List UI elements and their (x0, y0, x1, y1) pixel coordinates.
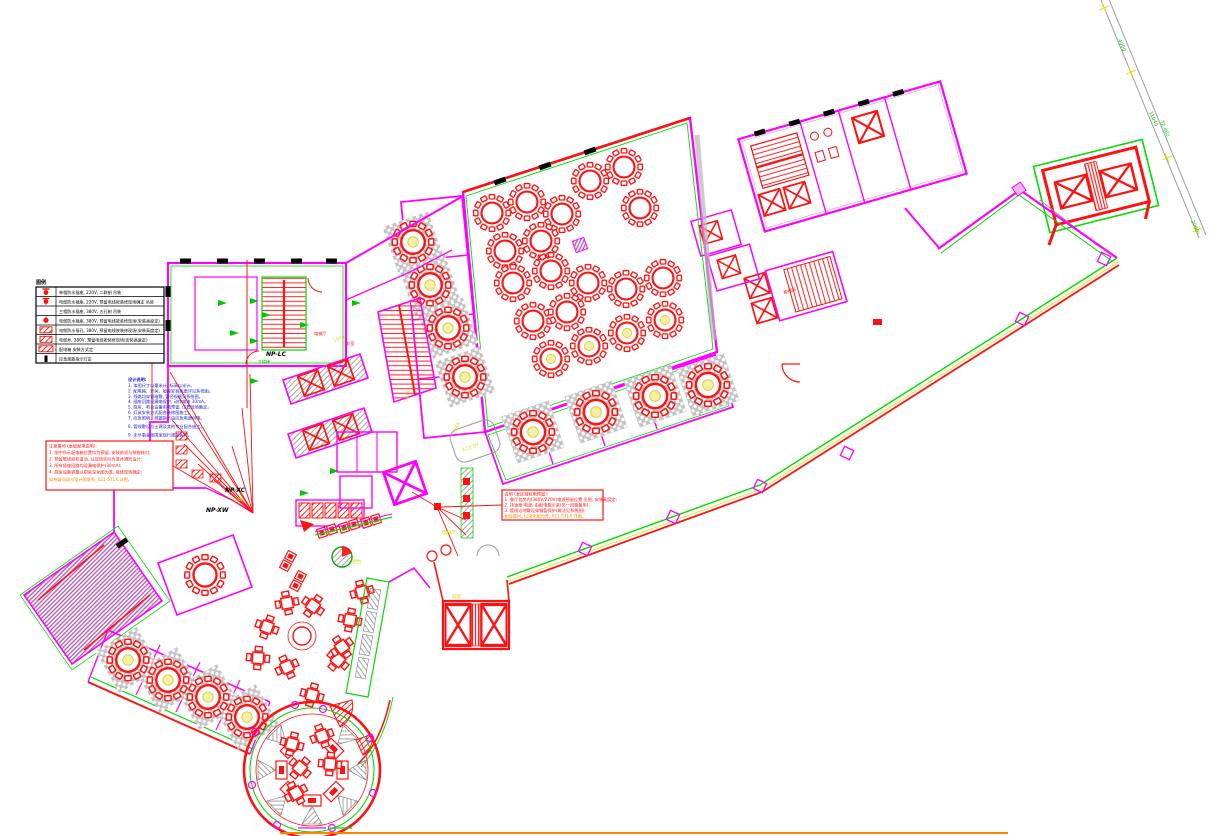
round-table (487, 233, 524, 270)
round-table (645, 260, 682, 297)
ring-table (293, 627, 311, 645)
legend-row-label: 三相防水插座, 380V, 五孔制 吊装 (59, 308, 121, 314)
legend-row-label: 电缆井, 380V, 预留电线按装修现场(安装高度定) (59, 337, 148, 343)
terrace-hall (507, 182, 1119, 584)
escalator-bank-2 (288, 408, 372, 458)
legend-row-label: 电缆防水插座, 220V, 预留电线按装修现场确定 吊装 (59, 299, 154, 305)
road-dim-label: 2050 (1189, 219, 1199, 233)
legend-row-label: 应急疏散指示灯定 (59, 356, 92, 362)
notes-line: 8. 管线敷设与土建及其他专业配合施工。 (128, 423, 205, 430)
warning-line: 2. 预留管线如有变动, 以现场实际为准并通知设计; (49, 456, 142, 463)
wc-fixtures (809, 127, 838, 162)
window-marks (166, 259, 338, 332)
fixture-mark (873, 319, 882, 325)
room-label: 入口门厅 (460, 441, 480, 454)
nw-annex-block (166, 259, 347, 367)
warning-highlight-line: 如有疑问, 以深化图为准, 021-571X 详图。 (505, 513, 586, 520)
small-table (427, 551, 437, 561)
warning-line: 1. 图中所示配电箱位置均为预留, 安装前须与装修核对; (49, 449, 151, 456)
round-table (474, 195, 511, 232)
cad-floor-plan-screenshot: 4000 11040 72.460 2050 (0, 0, 1215, 836)
round-table (509, 184, 546, 221)
warning-line: 4. 厨房设备容量以厨房深化图为准, 接线现场确定; (49, 469, 142, 476)
warning-line: 3. 所有插座回路均设漏电保护(30mA); (49, 462, 122, 469)
dim-label: 1500 (232, 497, 244, 503)
hub-circuits (412, 492, 466, 556)
legend-row-label: 单相防水插座, 220V, 二联制 吊装 (59, 289, 121, 295)
road-dim-label: 4000 (1116, 38, 1126, 52)
road-elevation-label: 72.460 (1158, 119, 1170, 137)
cable-box-icon (40, 327, 52, 333)
elevator-shaft-icon (1055, 175, 1093, 209)
sw-vip-band (88, 627, 280, 754)
legend-title: 图例 (36, 279, 46, 286)
floor-plan-svg: 4000 11040 72.460 2050 (0, 0, 1215, 836)
elevator-shaft-icon (482, 605, 507, 646)
rotunda (244, 702, 380, 836)
round-table (495, 265, 532, 302)
escalator-bank-1 (283, 354, 368, 404)
round-table-lit (571, 328, 608, 365)
panel-label: NP-LC (266, 351, 287, 358)
elevator-shaft-icon (446, 605, 471, 646)
ne-elevator-room (1030, 139, 1162, 245)
sw-wing (20, 488, 451, 767)
ne-annex-block (738, 78, 967, 231)
elevator-shaft-icon (383, 461, 426, 504)
site-road-lines: 4000 11040 72.460 2050 (1097, 0, 1206, 238)
legend-row-label: 配电箱 安装方式定 (59, 346, 93, 352)
panel-label: NP-XC (225, 487, 246, 494)
room-label: 前室 (346, 340, 354, 347)
round-table (606, 149, 643, 186)
panel-label: NP-XW (206, 507, 229, 514)
shaft-sockets (463, 478, 470, 519)
room-label: 主楼梯 (258, 358, 270, 364)
room-label: 电梯厅 (314, 330, 327, 337)
legend-row-label: 电缆防水插孔, 380V, 预留电线按装修现场(安装高度定) (59, 327, 160, 333)
panel-box-icon (39, 346, 53, 352)
shaft-icon (783, 182, 810, 209)
round-table-lit (533, 341, 570, 378)
vip-room-row (485, 353, 740, 484)
room-label: 前室 (452, 593, 462, 600)
warning-line: 注意事项 (本层配电说明): (49, 443, 97, 450)
small-table (441, 545, 451, 555)
room-label: 吧台 (352, 558, 362, 565)
legend-row-label: 电缆防水插座, 380V, 预留电线按装修现场(安装高度定) (59, 318, 160, 324)
dim-label: 1640 (333, 334, 346, 344)
round-table (608, 271, 645, 308)
shaft-icon (751, 298, 777, 324)
round-table-lit (647, 302, 684, 339)
notes-title: 设计说明: (128, 376, 147, 383)
round-table (185, 555, 226, 596)
open-dining-tables (246, 578, 377, 709)
exit-light-icon (45, 356, 48, 363)
door-swing-icon (477, 545, 488, 556)
ne-corridor-wall (905, 208, 940, 249)
central-lobby (337, 417, 509, 649)
door-swing-icon (782, 364, 800, 382)
door-swing-icon (308, 278, 322, 292)
column-marker-icon (572, 237, 587, 252)
round-table (572, 163, 609, 200)
road-dim-label: 11040 (1147, 110, 1159, 127)
legend-table: 图例 单相防水插座, 220V, 二联制 吊装 电缆防水插座, 220V, 预留… (36, 279, 164, 363)
door-swing-icon (488, 545, 499, 556)
shaft-icon (758, 189, 785, 216)
warning-highlight-line: 如有疑问请与设计院联系, 021-571X 详图。 (49, 476, 132, 483)
shaft-icon (744, 273, 770, 299)
notes-line: 7. 应急照明、疏散指示由应急电源供电。 (128, 414, 205, 421)
round-table (515, 303, 552, 340)
escalator-shaft-icon (852, 111, 884, 143)
round-table (622, 190, 659, 227)
round-table-lit (609, 315, 646, 352)
room-label: 电梯厅 (442, 529, 456, 536)
elevator-shaft-icon (1100, 163, 1138, 197)
banquet-hall (463, 118, 717, 432)
notes-line: 9. 未尽事宜按国家现行规范执行。 (128, 432, 192, 439)
cable-box-icon (40, 336, 52, 342)
design-notes: 设计说明: 1. 本图尺寸以毫米计, 标高以米计。 2. 配电箱、开关、插座安装… (128, 376, 213, 439)
shaft-icon (717, 255, 741, 279)
